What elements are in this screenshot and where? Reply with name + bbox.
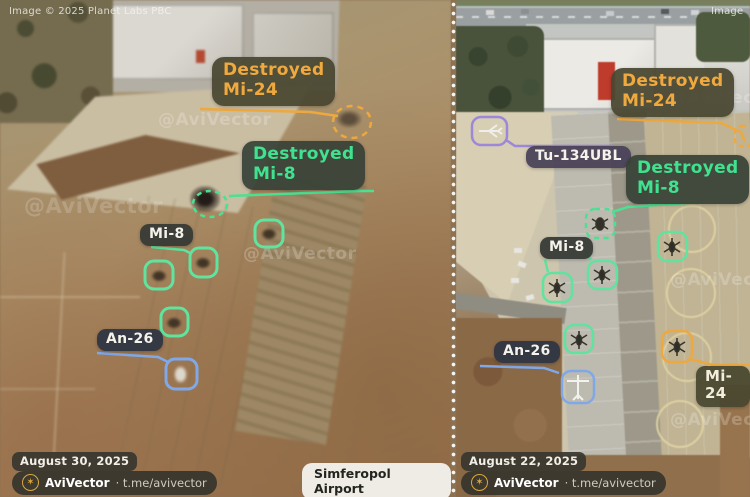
mi8-label: Mi-8 (540, 237, 593, 259)
avivector-watermark: @AviVector (670, 270, 750, 290)
planet-labs-credit: Image © 2025 Planet Labs PBC (9, 6, 172, 17)
avivector-logo-icon: ✶ (471, 474, 488, 491)
destroyed-mi8-label: Destroyed Mi-8 (242, 141, 365, 190)
left-satellite-panel: Image © 2025 Planet Labs PBC @AviVector … (0, 0, 451, 497)
avivector-watermark: @AviVector (24, 194, 163, 218)
brand-name: AviVector (45, 476, 110, 490)
avivector-badge: ✶ AviVector · t.me/avivector (12, 471, 217, 495)
telegram-handle: · t.me/avivector (116, 476, 207, 490)
avivector-watermark: @AviVector (670, 410, 750, 430)
mi8-label: Mi-8 (140, 224, 193, 246)
avivector-badge: ✶ AviVector · t.me/avivector (461, 471, 666, 495)
planet-labs-credit-partial: Image (711, 6, 743, 17)
destroyed-mi24-label: Destroyed Mi-24 (611, 68, 734, 117)
destroyed-mi24-label: Destroyed Mi-24 (212, 57, 335, 106)
tu134-label: Tu-134UBL (526, 146, 631, 168)
left-date-badge: August 30, 2025 (12, 452, 137, 471)
destroyed-mi8-label: Destroyed Mi-8 (626, 155, 749, 204)
avivector-logo-icon: ✶ (22, 474, 39, 491)
airport-badge: Simferopol Airport (302, 463, 451, 497)
an26-label: An-26 (97, 329, 163, 351)
panel-divider (451, 0, 456, 497)
mi24-label: Mi-24 (696, 366, 750, 407)
brand-name: AviVector (494, 476, 559, 490)
satellite-comparison: Image © 2025 Planet Labs PBC @AviVector … (0, 0, 750, 497)
an26-label: An-26 (494, 341, 560, 363)
avivector-watermark: @AviVector (158, 110, 271, 130)
avivector-watermark: @AviVector (243, 244, 356, 264)
right-satellite-panel: Image @AviVector @AviVector @AviVector D… (456, 0, 750, 497)
telegram-handle: · t.me/avivector (565, 476, 656, 490)
right-date-badge: August 22, 2025 (461, 452, 586, 471)
